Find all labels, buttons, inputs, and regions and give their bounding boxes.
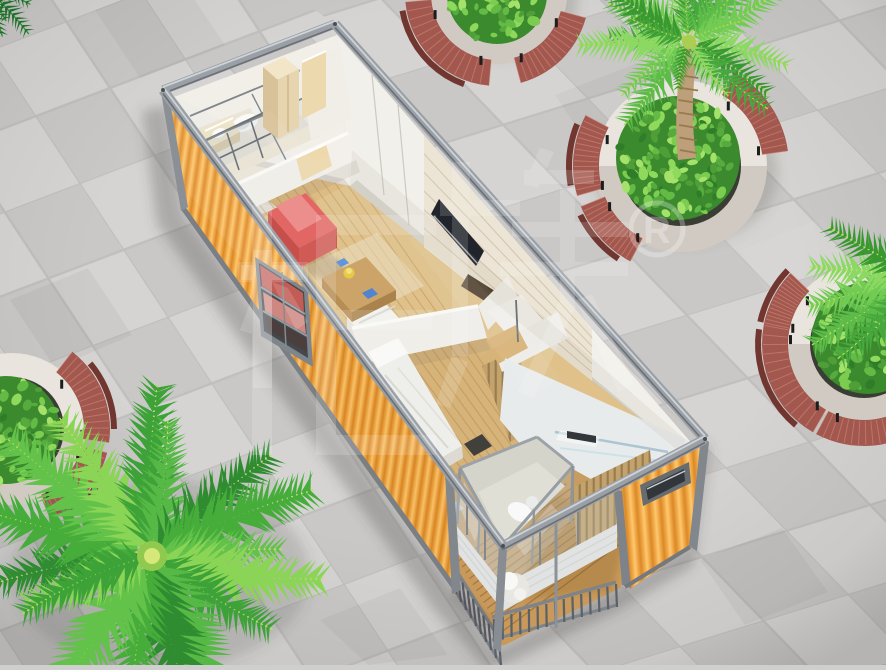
- svg-text:R: R: [643, 210, 670, 252]
